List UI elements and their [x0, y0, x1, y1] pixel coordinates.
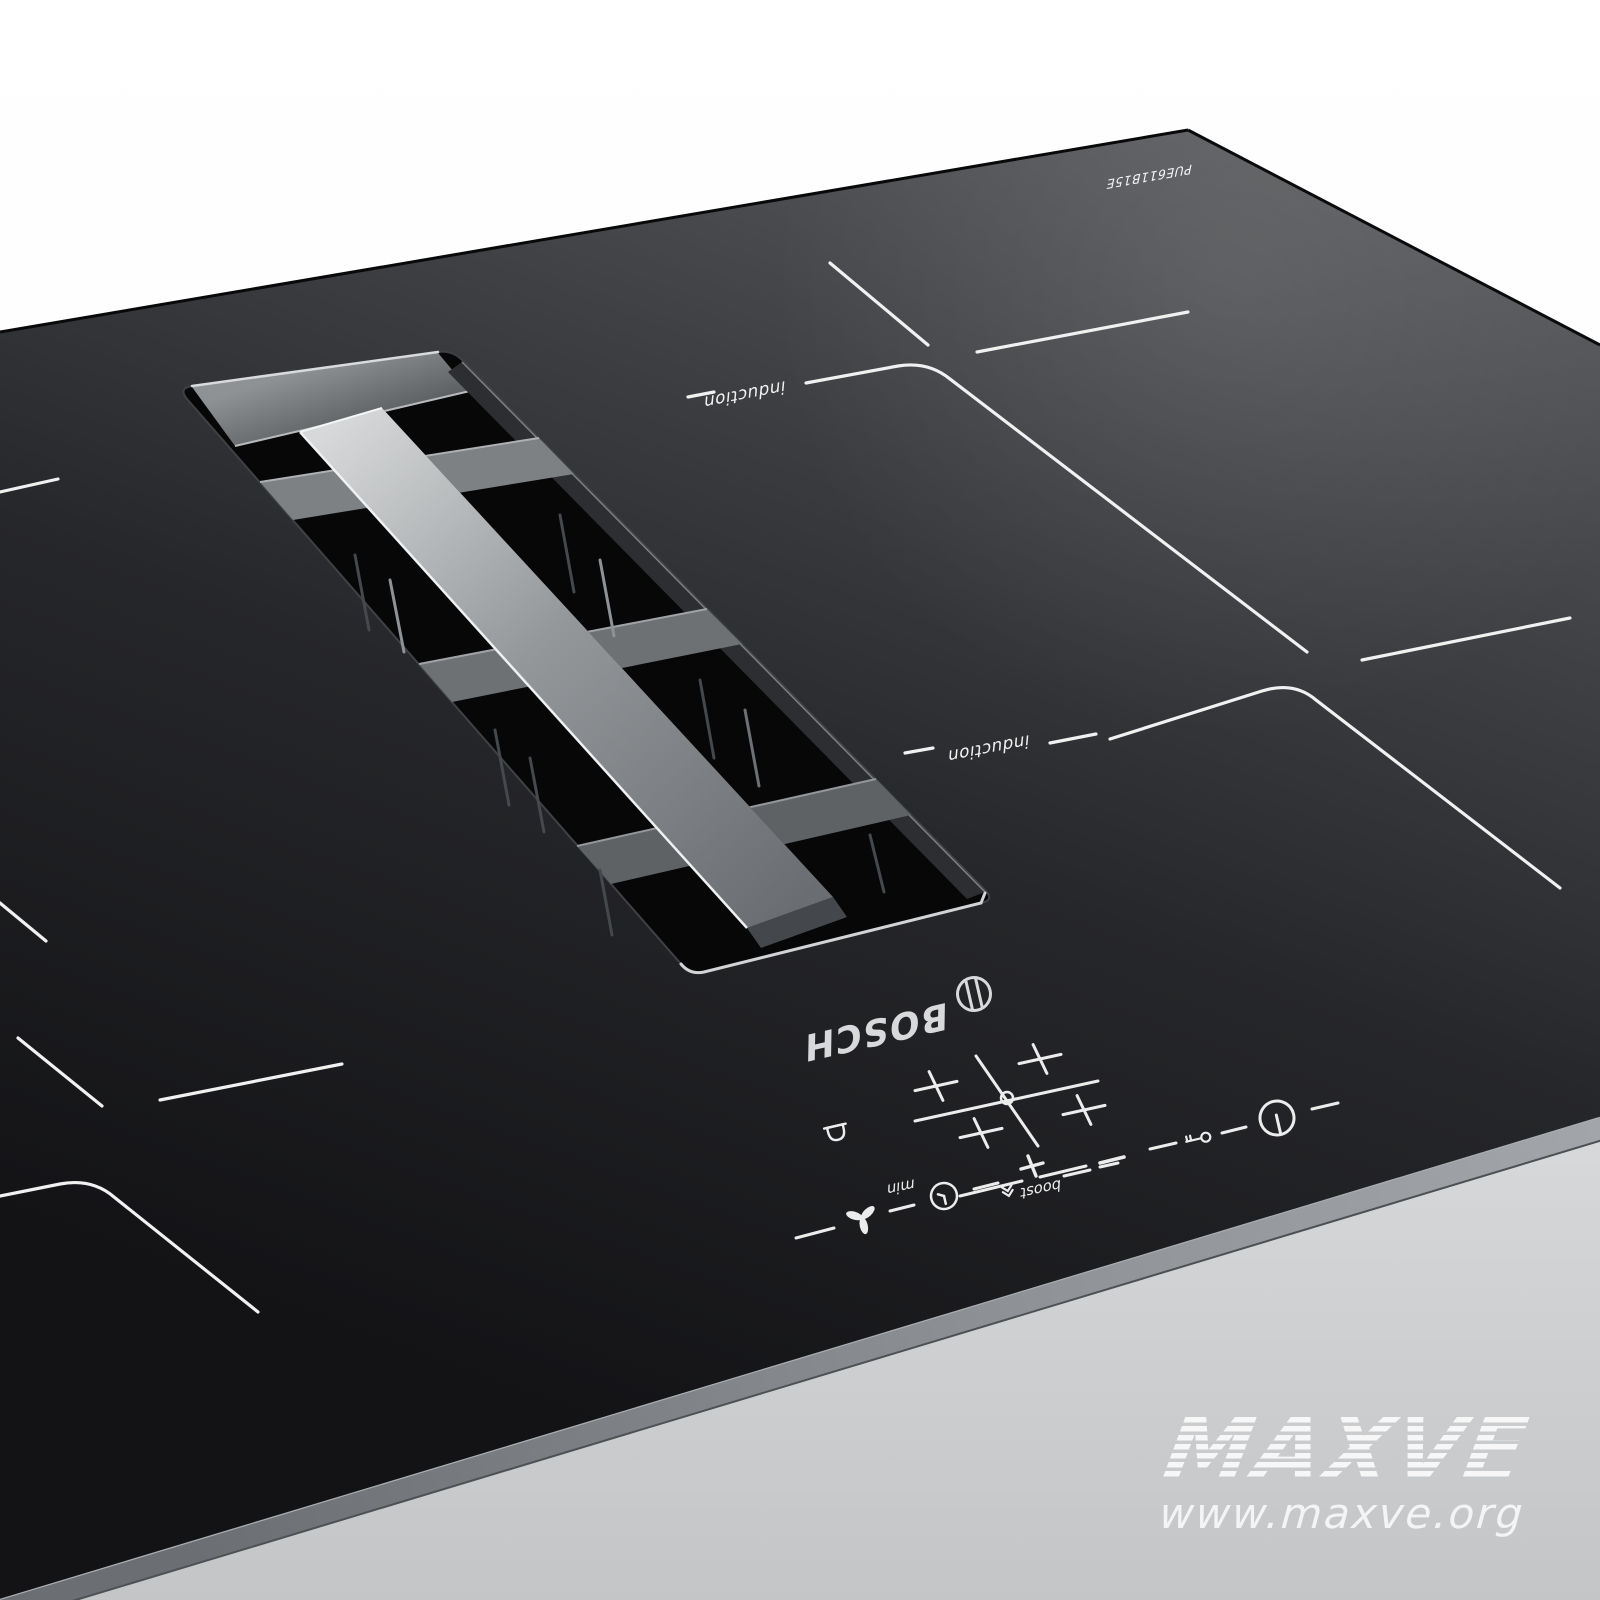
product-render-stage: induction induction PUE611B15E	[0, 0, 1600, 1600]
watermark-url: www.maxve.org	[1158, 1489, 1526, 1538]
watermark: MAXVE www.maxve.org	[1156, 1399, 1536, 1538]
watermark-title: MAXVE	[1156, 1399, 1536, 1501]
cooktop-render: induction induction PUE611B15E	[0, 0, 1600, 1600]
